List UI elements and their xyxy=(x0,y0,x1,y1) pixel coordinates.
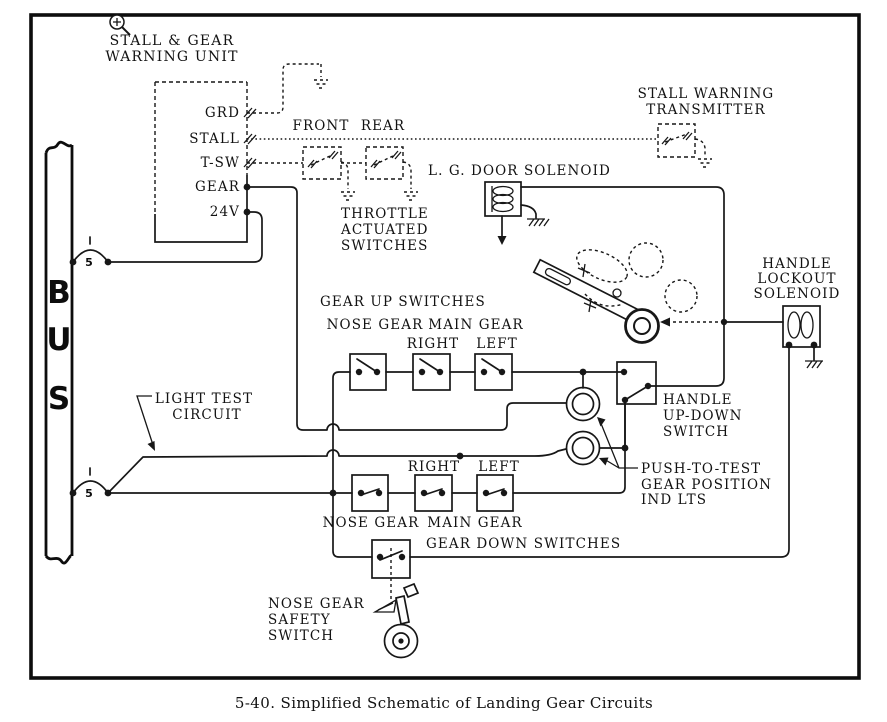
gear-up-main-label: MAIN GEAR xyxy=(428,317,523,333)
rear-label: REAR xyxy=(361,118,405,134)
warning-unit-title-2: WARNING UNIT xyxy=(105,49,238,65)
handle-switch-label-1: HANDLE xyxy=(663,392,733,408)
warning-unit-title-1: STALL & GEAR xyxy=(110,33,235,49)
safety-switch-label-3: SWITCH xyxy=(268,628,334,644)
grd-wire xyxy=(247,64,328,113)
breaker-top-rating: 5 xyxy=(85,256,93,269)
terminal-24v: 24V xyxy=(210,204,240,220)
bus-letter-u: U xyxy=(46,322,71,358)
wire-door-to-handle-switch xyxy=(521,187,724,386)
safety-switch-label-1: NOSE GEAR xyxy=(268,596,365,612)
ground-symbol-lockout xyxy=(805,361,823,368)
gear-up-right-label: RIGHT xyxy=(407,336,460,352)
gear-down-left-label: LEFT xyxy=(478,459,520,475)
front-label: FRONT xyxy=(293,118,350,134)
landing-gear-schematic: B U S 5 5 STALL & GEAR WARNING UNIT GRD … xyxy=(0,0,887,722)
lockout-label-1: HANDLE xyxy=(762,256,832,272)
handle-switch-label-2: UP-DOWN xyxy=(663,408,743,424)
magnifier-icon xyxy=(110,15,130,35)
gear-up-switch-contacts xyxy=(356,359,505,375)
bus-bar: B U S xyxy=(46,142,72,563)
gear-down-switches: RIGHT LEFT NOSE GEAR MAIN GEAR GEAR DOWN… xyxy=(108,401,625,552)
stall-transmitter-label-2: TRANSMITTER xyxy=(646,102,766,118)
safety-switch-label-2: SAFETY xyxy=(268,612,331,628)
lockout-label-2: LOCKOUT xyxy=(757,271,836,287)
figure-caption: 5-40. Simplified Schematic of Landing Ge… xyxy=(235,694,653,712)
throttle-actuated-switches: FRONT REAR THROTTLE ACTUATED SWITCHES xyxy=(247,118,429,254)
push-to-test-label-3: IND LTS xyxy=(641,492,707,508)
lg-door-solenoid: L. G. DOOR SOLENOID xyxy=(428,163,611,245)
stall-gear-warning-unit: STALL & GEAR WARNING UNIT GRD STALL T-SW… xyxy=(105,33,256,242)
terminal-tsw: T-SW xyxy=(201,155,240,171)
ground-symbol-door-solenoid xyxy=(527,219,549,226)
gear-handle-artwork xyxy=(534,243,718,343)
terminal-stall: STALL xyxy=(189,131,240,147)
door-solenoid-label: L. G. DOOR SOLENOID xyxy=(428,163,611,179)
ground-symbol-throttle-rear xyxy=(404,192,418,200)
terminal-gear: GEAR xyxy=(195,179,240,195)
light-test-circuit: LIGHT TEST CIRCUIT xyxy=(108,391,566,493)
ground-symbol-grd xyxy=(314,80,328,88)
circuit-breaker-top: 5 xyxy=(70,237,112,269)
gear-down-title: GEAR DOWN SWITCHES xyxy=(426,536,621,552)
push-to-test-pointer-arrows xyxy=(597,417,638,468)
throttle-caption-2: ACTUATED xyxy=(340,222,429,238)
light-test-pointer xyxy=(137,396,153,445)
terminal-grd: GRD xyxy=(205,105,240,121)
gear-up-nose-label: NOSE GEAR xyxy=(327,317,424,333)
bus-letter-b: B xyxy=(47,275,71,311)
light-test-label-1: LIGHT TEST xyxy=(155,391,253,407)
transmitter-terminal-hatches xyxy=(662,132,692,145)
throttle-caption-1: THROTTLE xyxy=(341,206,429,222)
handle-lever xyxy=(534,260,640,323)
handle-switch-label-3: SWITCH xyxy=(663,424,729,440)
gear-down-nose-label: NOSE GEAR xyxy=(323,515,420,531)
nose-wheel-artwork xyxy=(375,584,418,658)
gear-up-title: GEAR UP SWITCHES xyxy=(320,294,486,310)
gear-down-main-label: MAIN GEAR xyxy=(427,515,522,531)
light-test-label-2: CIRCUIT xyxy=(172,407,242,423)
gear-down-right-label: RIGHT xyxy=(408,459,461,475)
breaker-bottom-rating: 5 xyxy=(85,487,93,500)
push-to-test-label-2: GEAR POSITION xyxy=(641,477,772,493)
stall-transmitter-label-1: STALL WARNING xyxy=(638,86,775,102)
gear-up-left-label: LEFT xyxy=(476,336,518,352)
terminal-hatch-marks xyxy=(244,108,256,168)
gear-down-switch-contacts xyxy=(358,489,507,496)
push-to-test-label-1: PUSH-TO-TEST xyxy=(641,461,761,477)
ground-symbol-transmitter xyxy=(698,159,712,167)
schematic-page: B U S 5 5 STALL & GEAR WARNING UNIT GRD … xyxy=(0,0,887,722)
ground-symbol-throttle-front xyxy=(341,192,355,200)
circuit-breaker-bottom: 5 xyxy=(70,468,112,500)
lockout-label-3: SOLENOID xyxy=(754,286,841,302)
bus-letter-s: S xyxy=(48,381,70,417)
wire-down-row-to-handle-switch xyxy=(513,401,625,493)
throttle-caption-3: SWITCHES xyxy=(341,238,428,254)
gear-up-switches: GEAR UP SWITCHES NOSE GEAR MAIN GEAR RIG… xyxy=(320,294,624,390)
